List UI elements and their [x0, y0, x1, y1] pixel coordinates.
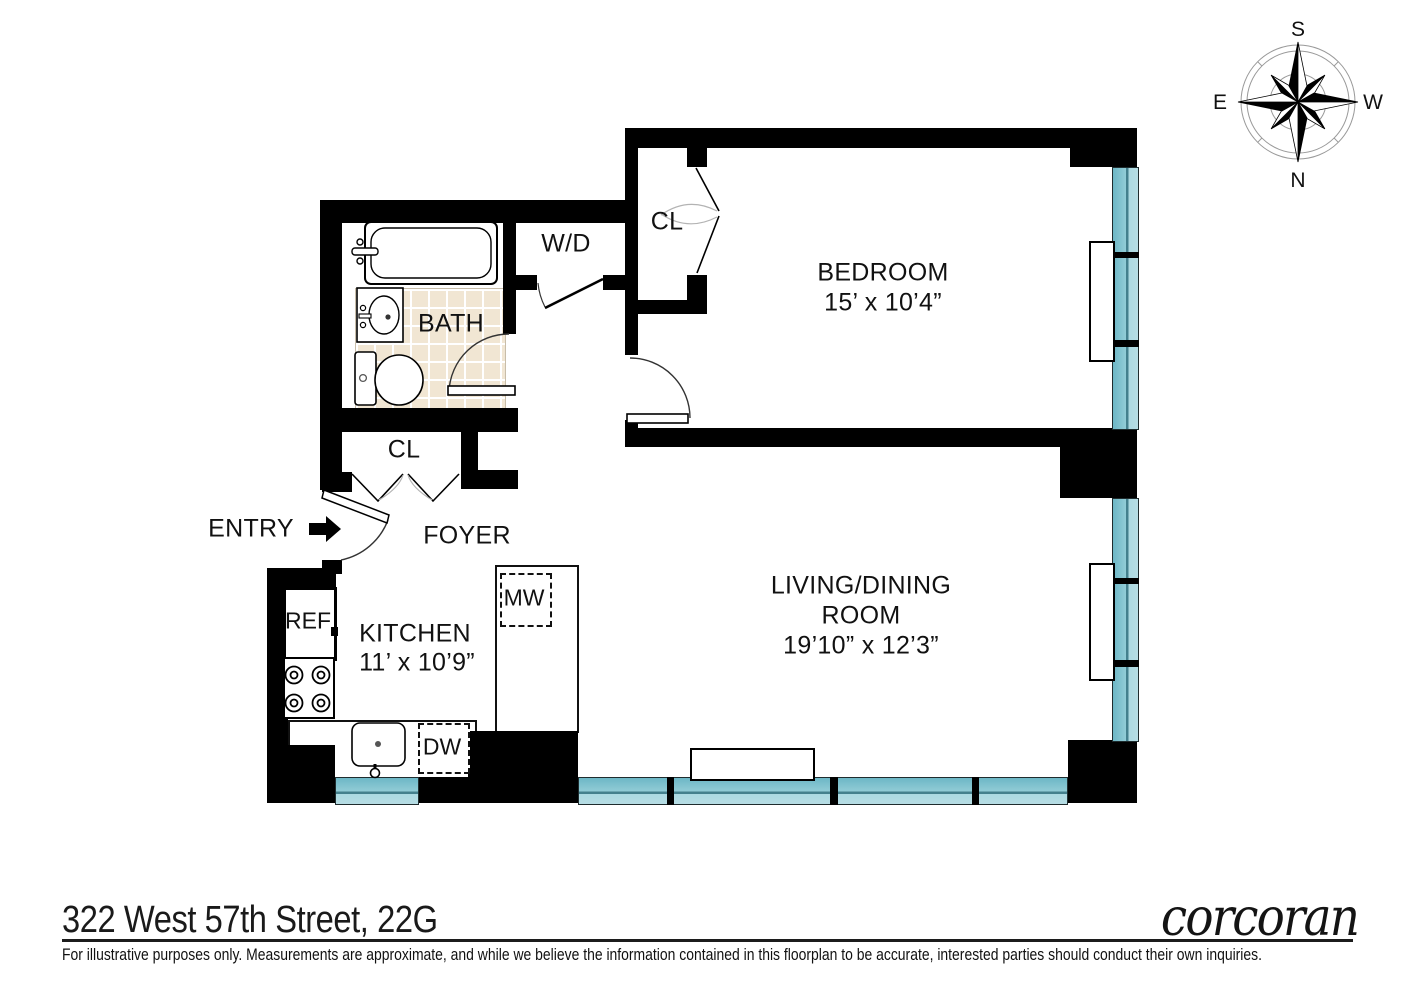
foyer-closet-bifold-door — [352, 474, 459, 501]
bathroom-sink — [357, 288, 403, 342]
foyer-closet-label: CL — [388, 436, 421, 465]
kitchen-dimensions: 11’ x 10’9” — [359, 649, 475, 678]
floor-plan: BEDROOM 15’ x 10’4” LIVING/DINING ROOM 1… — [0, 0, 1415, 860]
plan-symbols — [0, 0, 1415, 860]
bathtub — [352, 222, 497, 284]
living-dining-label-line2: ROOM — [822, 602, 901, 631]
refrigerator-label: REF — [285, 608, 331, 635]
stove-burners — [286, 667, 330, 712]
toilet — [355, 352, 423, 405]
bedroom-door — [627, 358, 690, 423]
washer-dryer-door — [538, 279, 603, 308]
living-dining-label-line1: LIVING/DINING — [771, 572, 951, 601]
bath-door — [448, 334, 515, 395]
bedroom-label: BEDROOM — [817, 259, 948, 288]
footer-divider — [62, 939, 1353, 942]
kitchen-sink — [352, 723, 405, 778]
entry-label: ENTRY — [208, 515, 294, 544]
washer-dryer-label: W/D — [541, 230, 591, 259]
microwave-label: MW — [504, 585, 545, 612]
bedroom-dimensions: 15’ x 10’4” — [824, 289, 942, 318]
refrigerator-handle — [331, 627, 338, 636]
bath-label: BATH — [418, 310, 484, 339]
kitchen-label: KITCHEN — [359, 620, 471, 649]
bedroom-closet-label: CL — [651, 208, 684, 237]
foyer-label: FOYER — [423, 522, 511, 551]
entry-arrow-icon — [309, 516, 341, 542]
disclaimer-text: For illustrative purposes only. Measurem… — [62, 945, 1262, 965]
dishwasher-label: DW — [423, 734, 461, 761]
floorplan-page: BEDROOM 15’ x 10’4” LIVING/DINING ROOM 1… — [0, 0, 1415, 1000]
living-dining-dimensions: 19’10” x 12’3” — [783, 632, 939, 661]
address-title: 322 West 57th Street, 22G — [62, 899, 438, 942]
